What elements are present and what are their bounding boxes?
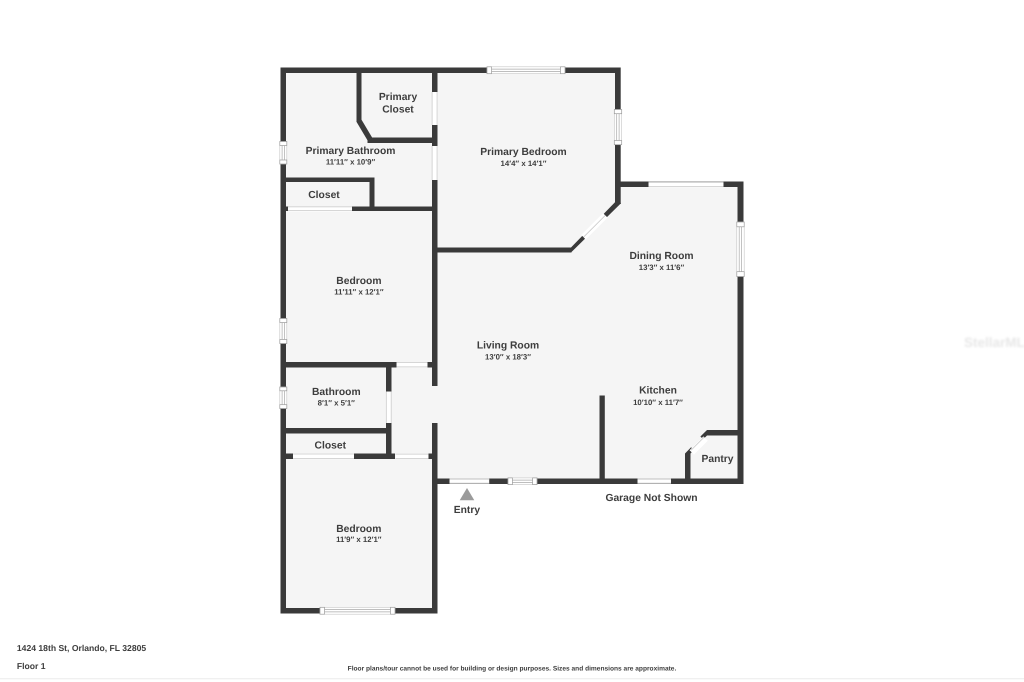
svg-text:Dining Room: Dining Room: [629, 251, 693, 262]
svg-text:Closet: Closet: [315, 441, 347, 452]
svg-text:13′0″ x 18′3″: 13′0″ x 18′3″: [485, 353, 531, 362]
svg-text:1424 18th St, Orlando, FL 3280: 1424 18th St, Orlando, FL 32805: [17, 643, 147, 653]
svg-text:Entry: Entry: [454, 505, 481, 516]
svg-text:Closet: Closet: [382, 104, 414, 115]
svg-text:Bedroom: Bedroom: [336, 276, 381, 287]
svg-text:Living Room: Living Room: [477, 341, 539, 352]
svg-text:Bedroom: Bedroom: [336, 524, 381, 535]
svg-text:Pantry: Pantry: [701, 454, 733, 465]
svg-text:Primary Bathroom: Primary Bathroom: [306, 146, 396, 157]
svg-text:Kitchen: Kitchen: [639, 386, 677, 397]
svg-text:8′1″ x 5′1″: 8′1″ x 5′1″: [318, 399, 355, 408]
svg-text:11′11″ x 10′9″: 11′11″ x 10′9″: [326, 158, 376, 167]
svg-text:Bathroom: Bathroom: [312, 387, 361, 398]
svg-text:10′10″ x 11′7″: 10′10″ x 11′7″: [633, 398, 683, 407]
svg-text:13′3″ x 11′6″: 13′3″ x 11′6″: [639, 263, 685, 272]
svg-text:11′11″ x 12′1″: 11′11″ x 12′1″: [334, 287, 384, 296]
svg-text:14′4″ x 14′1″: 14′4″ x 14′1″: [501, 159, 547, 168]
svg-text:Closet: Closet: [308, 190, 340, 201]
svg-text:Garage Not Shown: Garage Not Shown: [605, 493, 697, 504]
svg-text:Primary: Primary: [379, 92, 418, 103]
svg-text:Floor plans/tour cannot be use: Floor plans/tour cannot be used for buil…: [348, 666, 677, 673]
svg-text:StellarMLS: StellarMLS: [964, 335, 1024, 350]
svg-text:11′9″ x 12′1″: 11′9″ x 12′1″: [336, 535, 382, 544]
svg-text:Floor 1: Floor 1: [17, 661, 46, 671]
svg-text:Primary Bedroom: Primary Bedroom: [480, 147, 566, 158]
